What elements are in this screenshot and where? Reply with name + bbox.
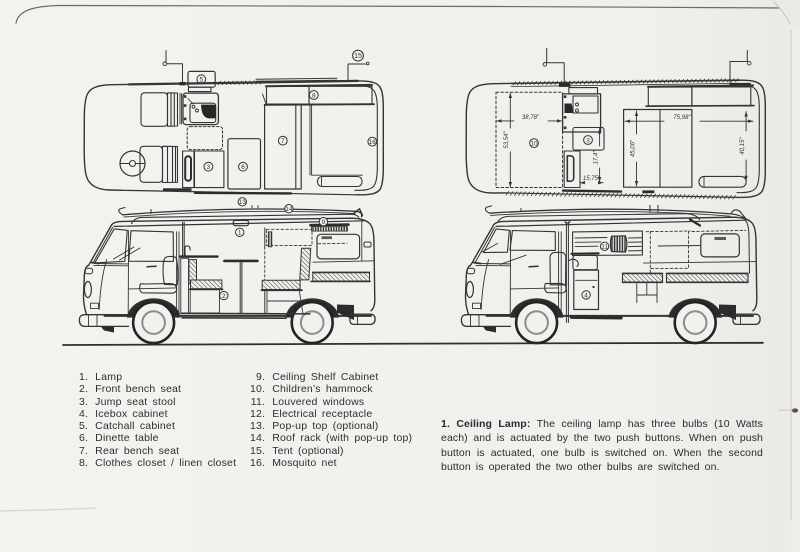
svg-text:15: 15 [354, 53, 362, 60]
svg-text:3: 3 [586, 137, 590, 144]
svg-text:9: 9 [322, 219, 326, 226]
svg-text:14: 14 [285, 206, 293, 213]
svg-text:2: 2 [222, 293, 226, 300]
svg-text:7: 7 [281, 138, 285, 145]
svg-text:53,54″: 53,54″ [504, 131, 510, 149]
svg-text:16: 16 [369, 139, 377, 146]
svg-text:13: 13 [239, 199, 247, 206]
svg-text:5: 5 [199, 77, 203, 84]
svg-text:11: 11 [601, 244, 608, 251]
svg-text:3: 3 [207, 164, 211, 171]
svg-text:38,78″: 38,78″ [522, 115, 540, 121]
svg-text:17,4″: 17,4″ [593, 150, 599, 165]
svg-text:15,75″: 15,75″ [583, 176, 601, 182]
svg-text:45,06″: 45,06″ [630, 139, 636, 157]
svg-text:1: 1 [238, 230, 242, 237]
svg-text:40,15″: 40,15″ [740, 137, 746, 155]
svg-text:8: 8 [312, 92, 316, 99]
svg-text:4: 4 [584, 292, 588, 299]
svg-text:75,98″: 75,98″ [673, 115, 691, 121]
svg-text:6: 6 [241, 164, 245, 171]
svg-text:10: 10 [530, 141, 538, 148]
